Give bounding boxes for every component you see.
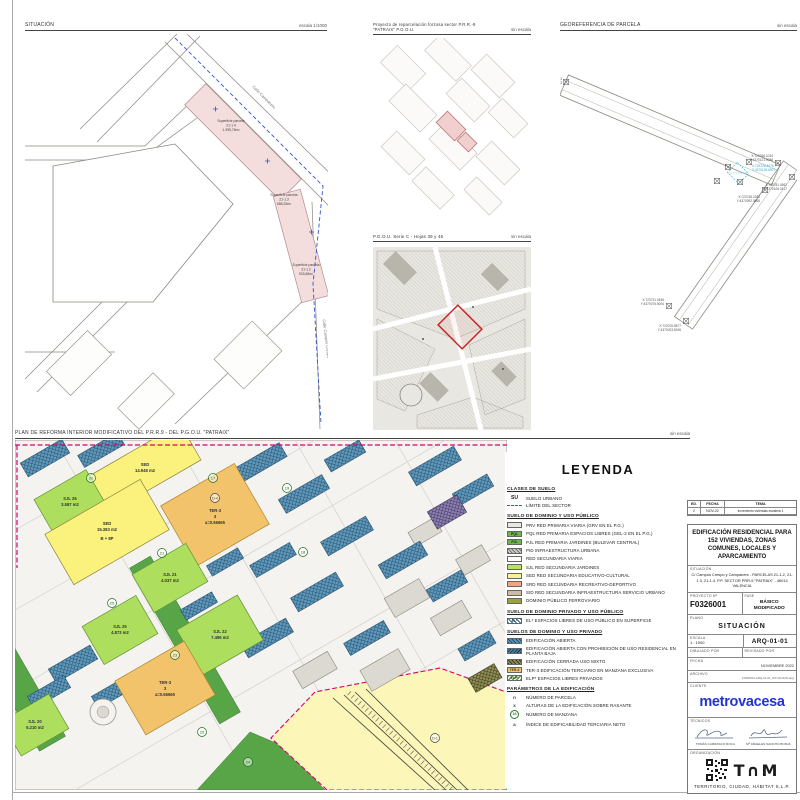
num-parcela-symbol: n (507, 695, 522, 700)
svg-text:SJL 20: SJL 20 (28, 719, 42, 724)
svg-text:SJL 22: SJL 22 (213, 629, 227, 634)
svg-text:SJL 21: SJL 21 (163, 572, 177, 577)
legend: LEYENDA CLASES DE SUELO SU SUELO URBANO … (505, 452, 691, 788)
svg-text:TER-3: TER-3 (159, 680, 172, 685)
svg-text:4.873 m2: 4.873 m2 (111, 630, 129, 635)
legend-item: PID INFRAESTRUCTURA URBANA (507, 548, 689, 554)
legend-section-privado: SUELOS DE DOMINIO Y USO PRIVADO (507, 630, 689, 635)
svg-text:SED: SED (141, 462, 150, 467)
legend-item: PRV RED PRIMARIA VIARIA (GRV EN EL P.G.) (507, 522, 689, 528)
legend-item: EDIFICACIÓN CERRADA USO MIXTO (507, 659, 689, 665)
legend-item: n NÚMERO DE PARCELA (507, 695, 689, 700)
legend-title: LEYENDA (507, 462, 689, 477)
legend-item: SRD RED SECUNDARIA RECREATIVO-DEPORTIVO (507, 581, 689, 587)
title-block: ED. FECHA TEMA 2 NOV-22 Incremento vivie… (687, 500, 797, 794)
sed-swatch (507, 573, 522, 579)
svg-text:15.383 m2: 15.383 m2 (97, 527, 118, 532)
svg-text:Y:4370100.6507: Y:4370100.6507 (752, 168, 775, 172)
svg-text:Y:4370106.2417: Y:4370106.2417 (764, 187, 787, 191)
situacion-map: Superficie parcela 21-1.4 1.395,76m² Sup… (25, 34, 328, 432)
parcel-label: Superficie parcela (217, 119, 244, 123)
svg-text:D-4: D-4 (212, 497, 218, 501)
svg-text:SJL 26: SJL 26 (63, 496, 77, 501)
svg-text:5.210 m2: 5.210 m2 (26, 725, 44, 730)
georef-title: GEOREFERENCIA DE PARCELA (560, 22, 641, 28)
legend-item: ELP* ELP* ESPACIOS LIBRES PRIVADOS (507, 675, 689, 681)
legend-item: x ALTURAS DE LA EDIFICACIÓN SOBRE RASANT… (507, 703, 689, 708)
pgou-scale: sin escala (511, 234, 531, 239)
svg-text:19: 19 (285, 486, 290, 491)
fecha-value: NOVIEMBRE 2022 (688, 663, 796, 670)
legend-item: 24 NÚMERO DE MANZANA (507, 710, 689, 719)
prv-swatch (507, 522, 522, 528)
legend-item: PQL PQL RED PRIMARIA ESPACIOS LIBRES (GE… (507, 531, 689, 537)
plan-map: SED 14.948 m2 SJL 26 3.587 m2 SED 15.383… (15, 440, 507, 790)
plan-title: PLAN DE REFORMA INTERIOR MODIFICATIVO DE… (15, 430, 230, 436)
signature-1-icon (693, 725, 737, 741)
svg-text:D-1: D-1 (432, 737, 438, 741)
svg-text:4.037 m2: 4.037 m2 (161, 578, 179, 583)
georef-scale: sin escala (777, 23, 797, 28)
legend-item: EDIFICACIÓN ABIERTA (507, 638, 689, 644)
street-name-campaners: Calle Campaners (251, 84, 276, 109)
signature-2-icon (746, 725, 790, 741)
limite-sector-symbol (507, 505, 522, 506)
organization-name: TERRITORIO, CIUDAD, HÁBITAT S.L.P. (688, 784, 796, 793)
svg-text:21-1.2: 21-1.2 (301, 268, 311, 272)
svg-text:Y:4370023.8156: Y:4370023.8156 (658, 328, 681, 332)
project-number: F0326001 (688, 598, 742, 611)
svg-text:Y:4370121.9088: Y:4370121.9088 (750, 158, 773, 162)
svg-text:21-1.3: 21-1.3 (279, 198, 289, 202)
svg-text:24: 24 (246, 760, 251, 765)
panel-header-reparcelacion: Proyecto de reparcelación forzosa sector… (373, 22, 531, 35)
legend-item: SU SUELO URBANO (507, 495, 689, 501)
svg-text:20: 20 (89, 476, 94, 481)
parcel-label: Superficie parcela (270, 193, 297, 197)
ter3-swatch: TER-3 (507, 667, 522, 673)
legend-item: a ÍNDICE DE EDIFICABILIDAD TERCIARIA NET… (507, 722, 689, 727)
revision-table: ED. FECHA TEMA 2 NOV-22 Incremento vivie… (687, 500, 797, 516)
svg-text:TER-3: TER-3 (209, 508, 222, 513)
drawing-number: ARQ-01-01 (752, 638, 788, 645)
abierta-swatch (507, 638, 522, 644)
tecnico-2-name: Mª ÁNGELES SANCHO BORJA (746, 742, 790, 746)
reparcelacion-map (373, 38, 531, 228)
street-name-campos-crespo: Calle Campos Crespo (322, 319, 328, 359)
su-symbol: SU (507, 495, 522, 501)
legend-item: EL* EL* ESPACIOS LIBRES DE USO PÚBLICO E… (507, 618, 689, 624)
svg-text:Y:4370075.5004: Y:4370075.5004 (641, 302, 664, 306)
pjl-swatch: PJL (507, 539, 522, 545)
pgou-map (373, 247, 531, 430)
pgou-title: P.G.O.U. Serie C - Hojas 39 y 46 (373, 234, 443, 239)
metrovacesa-logo: metrovacesa (688, 688, 796, 717)
panel-header-pgou: P.G.O.U. Serie C - Hojas 39 y 46 sin esc… (373, 234, 531, 242)
srd-swatch (507, 581, 522, 587)
pid-swatch (507, 548, 522, 554)
el-swatch: EL* (507, 618, 522, 624)
legend-item: SJL RED SECUNDARIA JARDINES (507, 564, 689, 570)
plan-scale: sin escala (670, 431, 690, 436)
legend-item: SED RED SECUNDARIA EDUCATIVO-CULTURAL (507, 573, 689, 579)
tm-logo: T∩M (734, 761, 780, 780)
tecnico-1-name: TOMÁS CARRASCO ROCA (693, 742, 737, 746)
svg-text:21-1.4: 21-1.4 (226, 124, 236, 128)
panel-header-situacion: SITUACIÓN escala 1/1000 (25, 22, 327, 31)
drawing-sheet: F0326001 · ARQ-01-01 · SITUACIÓN SITUACI… (0, 0, 800, 800)
svg-text:Y:4370147.4623: Y:4370147.4623 (560, 81, 562, 85)
legend-item: DOMINIO PÚBLICO FERROVIARIO (507, 598, 689, 604)
sid-swatch (507, 590, 522, 596)
svg-text:1.395,76m²: 1.395,76m² (222, 128, 240, 132)
svg-text:14.948 m2: 14.948 m2 (135, 468, 156, 473)
svg-text:933,68m²: 933,68m² (299, 272, 314, 276)
legend-item: EDIFICACIÓN ABIERTA CON PROHIBICIÓN DE U… (507, 646, 689, 656)
viaria-swatch (507, 556, 522, 562)
parcel-label: Superficie parcela (292, 263, 319, 267)
project-title: EDIFICACIÓN RESIDENCIAL PARA 152 VIVIEND… (688, 525, 796, 565)
svg-text:21: 21 (160, 551, 165, 556)
ferroviario-swatch (507, 598, 522, 604)
legend-item: TER-3 TER-3 EDIFICACIÓN TERCIARIO EN MAN… (507, 667, 689, 673)
alturas-symbol: x (507, 703, 522, 708)
sjl-swatch (507, 564, 522, 570)
qr-code-icon (705, 758, 729, 782)
plano-value: SITUACIÓN (688, 620, 796, 634)
panel-header-plan: PLAN DE REFORMA INTERIOR MODIFICATIVO DE… (15, 430, 690, 439)
svg-text:SED: SED (103, 521, 112, 526)
svg-text:a=0.66665: a=0.66665 (155, 692, 176, 697)
svg-text:SJL 25: SJL 25 (113, 624, 127, 629)
svg-text:a=0.66665: a=0.66665 (205, 520, 226, 525)
legend-section-clases: CLASES DE SUELO (507, 487, 689, 492)
num-manzana-symbol: 24 (507, 710, 522, 719)
legend-item: RED SECUNDARIA VIARIA (507, 556, 689, 562)
legend-section-parametros: PARÁMETROS DE LA EDIFICACIÓN (507, 687, 689, 692)
svg-text:23: 23 (173, 653, 178, 658)
situacion-title: SITUACIÓN (25, 22, 54, 28)
legend-item: SID RED SECUNDARIA INFRAESTRUCTURA SERVI… (507, 590, 689, 596)
georef-map: X:723689.6891 Y:4370147.4623 X:723766.10… (560, 30, 797, 430)
abierta-pb-swatch (507, 648, 522, 654)
reparcelacion-scale: sin escala (511, 27, 531, 32)
legend-section-publico: SUELO DE DOMINIO Y USO PÚBLICO (507, 514, 689, 519)
svg-text:B + 8P: B + 8P (101, 536, 114, 541)
legend-section-privado-publico: SUELO DE DOMINIO PRIVADO Y USO PÚBLICO (507, 610, 689, 615)
reparcelacion-title: Proyecto de reparcelación forzosa sector… (373, 22, 493, 32)
svg-text:22: 22 (200, 730, 205, 735)
situacion-scale: escala 1/1000 (299, 23, 327, 28)
pql-swatch: PQL (507, 531, 522, 537)
svg-text:3.587 m2: 3.587 m2 (61, 502, 79, 507)
fase-value: BÁSICO MODIFICADO (743, 598, 797, 614)
sheet-edge-left (12, 0, 13, 800)
sheet-edge-bottom (12, 792, 800, 793)
svg-text:Y:4370092.3665: Y:4370092.3665 (737, 199, 760, 203)
cerrada-swatch (507, 659, 522, 665)
indice-symbol: a (507, 722, 522, 727)
svg-text:7.496 m2: 7.496 m2 (211, 635, 229, 640)
svg-text:25: 25 (110, 601, 115, 606)
escala-value: 1 : 1000 (688, 640, 743, 647)
elp-swatch: ELP* (507, 675, 522, 681)
legend-item: LÍMITE DEL SECTOR (507, 503, 689, 508)
svg-text:658,26m²: 658,26m² (277, 202, 292, 206)
legend-item: PJL PJL RED PRIMARIA JARDINES (BULEVAR C… (507, 539, 689, 545)
svg-text:17: 17 (211, 476, 216, 481)
svg-text:18: 18 (301, 550, 306, 555)
situacion-field-value: C/ Campos Crespo y Campaners - PARCELAS … (688, 571, 796, 591)
